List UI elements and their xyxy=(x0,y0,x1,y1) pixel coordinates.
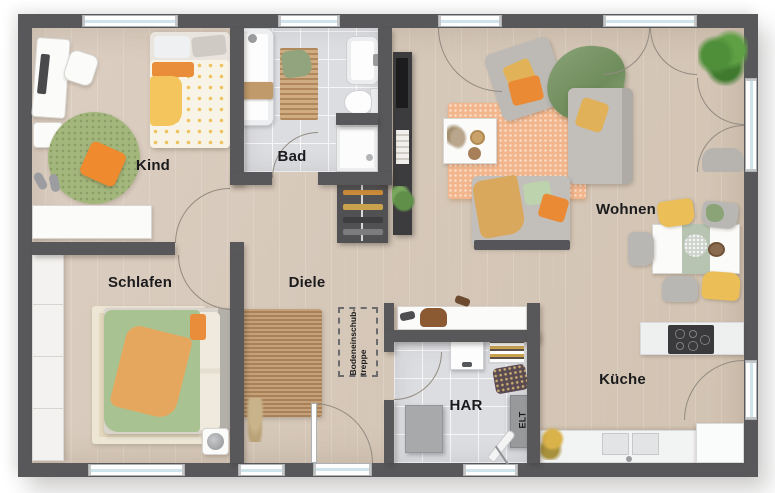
kind-bed-pillow-2 xyxy=(191,34,227,57)
sofa-bottom-base xyxy=(474,240,570,250)
sink-faucet xyxy=(626,456,632,462)
label-schlafen: Schlafen xyxy=(100,274,180,291)
wall-bad-bottom-right xyxy=(318,172,392,185)
wall-har-kueche xyxy=(527,303,540,463)
coffee-table-plant xyxy=(447,124,469,152)
wall-har-left-b xyxy=(384,400,394,463)
sink-basin-1 xyxy=(602,433,629,455)
label-kueche: Küche xyxy=(585,371,660,388)
har-window xyxy=(463,464,518,476)
wohnen-window-2 xyxy=(603,15,697,27)
wall-har-top xyxy=(384,330,540,342)
kind-window xyxy=(82,15,178,27)
kitchen-appliance xyxy=(696,423,744,463)
schlafen-window xyxy=(88,464,185,476)
entrance-door-leaf xyxy=(311,403,317,463)
wohnen-french-door xyxy=(745,78,757,172)
kind-orange-pillow xyxy=(152,62,194,77)
kind-bed-pillow-1 xyxy=(154,36,190,58)
diele-window xyxy=(238,464,285,476)
chair-yellow-bottom xyxy=(701,271,741,302)
tv-screen xyxy=(396,58,408,108)
har-freezer xyxy=(405,405,443,453)
label-elt-text: ELT xyxy=(517,412,527,429)
kueche-door xyxy=(745,360,757,420)
label-diele: Diele xyxy=(277,274,337,291)
attic-hatch-line2: treppe xyxy=(358,349,368,375)
cooktop xyxy=(668,325,714,354)
bathtub-faucet xyxy=(248,34,257,43)
wall-corner-kind-schlafen xyxy=(230,242,244,255)
schlafen-wardrobe xyxy=(32,252,64,461)
table-flowers xyxy=(684,234,707,257)
chair-green-napkin xyxy=(706,204,724,222)
sofa-right-armrest xyxy=(622,88,633,184)
attic-hatch-line1: Bodeneinschub- xyxy=(348,309,358,376)
label-elt: ELT xyxy=(508,406,536,434)
sofa-mustard-throw xyxy=(471,174,526,239)
shoes-row-2 xyxy=(343,204,383,210)
bad-window xyxy=(278,15,340,27)
bath-towel xyxy=(280,48,312,79)
wohnen-window-1 xyxy=(438,15,502,27)
kitchen-dried-flowers xyxy=(540,425,565,460)
diele-dry-plant xyxy=(244,398,266,442)
building-outline: Bodeneinschub- treppe xyxy=(18,14,758,477)
label-har: HAR xyxy=(440,397,492,414)
diele-console xyxy=(397,306,527,330)
wall-har-left-a xyxy=(384,342,394,352)
coffee-table-tray-2 xyxy=(468,147,481,160)
wall-schlafen-diele xyxy=(230,255,244,463)
console-bag xyxy=(420,308,447,327)
label-bad: Bad xyxy=(267,148,317,165)
floor-plan: Bodeneinschub- treppe xyxy=(0,0,775,493)
sink-basin-2 xyxy=(632,433,659,455)
washing-machine-detail xyxy=(462,362,472,367)
kind-yellow-blanket xyxy=(150,76,182,126)
wall-kind-bad xyxy=(230,28,244,185)
toilet-bowl xyxy=(344,90,372,115)
table-bowl xyxy=(708,242,725,257)
label-wohnen: Wohnen xyxy=(590,201,662,218)
coffee-table-tray-1 xyxy=(470,130,485,145)
attic-hatch-label: Bodeneinschub- treppe xyxy=(348,309,368,376)
wall-kind-bottom xyxy=(32,242,175,255)
shower-tray xyxy=(336,126,378,172)
tv-board-books xyxy=(396,130,409,164)
label-kind: Kind xyxy=(118,157,188,174)
wall-bad-wohnen xyxy=(378,28,392,185)
wall-bad-bottom-left xyxy=(230,172,272,185)
wall-har-stub-left xyxy=(384,303,394,330)
wall-shower-stub xyxy=(336,113,378,125)
shoes-row-1 xyxy=(343,190,383,195)
entrance-door xyxy=(313,463,372,476)
shoes-row-3 xyxy=(343,217,383,223)
schlafen-lamp xyxy=(207,433,224,450)
chair-gray-bottom xyxy=(662,276,698,302)
kind-dresser xyxy=(32,205,152,239)
shower-drain xyxy=(366,154,373,161)
tv-board-plant xyxy=(392,186,416,216)
schlafen-orange-pillow xyxy=(190,314,206,340)
attic-hatch: Bodeneinschub- treppe xyxy=(338,307,378,377)
chair-gray-left xyxy=(628,232,654,266)
shoes-row-4 xyxy=(343,229,383,235)
